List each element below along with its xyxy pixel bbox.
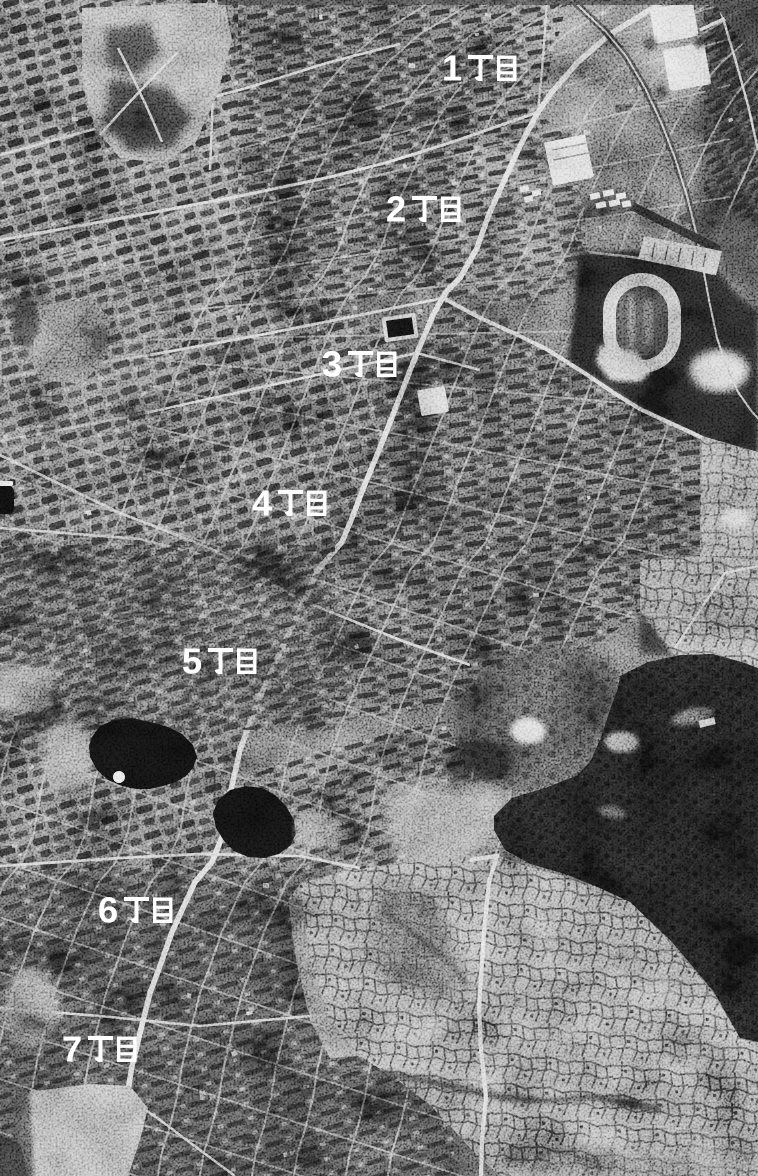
svg-text:6: 6 (98, 890, 118, 931)
svg-text:4: 4 (252, 483, 273, 524)
svg-text:3: 3 (322, 344, 342, 385)
svg-text:7: 7 (62, 1029, 82, 1070)
svg-text:5: 5 (182, 641, 202, 682)
svg-text:2: 2 (386, 189, 406, 230)
svg-text:1: 1 (442, 48, 462, 89)
